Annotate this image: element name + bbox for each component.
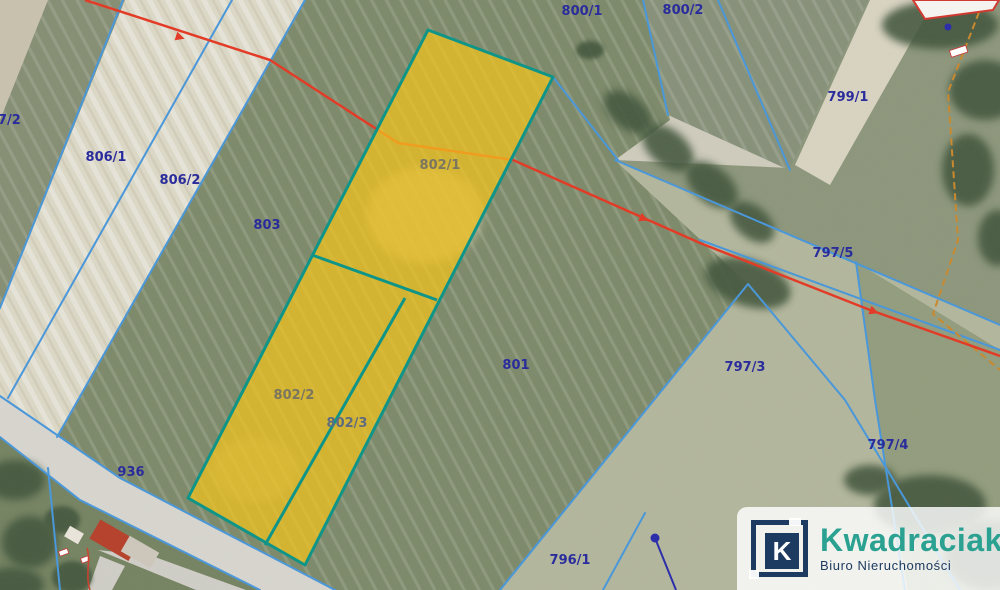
parcel-label-936: 936 [117, 465, 144, 480]
parcel-label-7-2: 7/2 [0, 113, 21, 128]
parcel-label-802-2: 802/2 [274, 388, 315, 403]
survey-point-dot [945, 24, 952, 31]
parcel-label-806-2: 806/2 [160, 173, 201, 188]
parcel-label-802-3: 802/3 [327, 416, 368, 431]
agency-logo: K Kwadraciak Biuro Nieruchomości [737, 507, 1000, 590]
agency-logo-text: Kwadraciak Biuro Nieruchomości [820, 524, 1000, 572]
parcel-label-797-5: 797/5 [813, 246, 854, 261]
parcel-label-799-1: 799/1 [828, 90, 869, 105]
agency-brand-name: Kwadraciak [820, 524, 1000, 558]
parcel-label-800-2: 800/2 [663, 3, 704, 18]
k-mark-letter: K [765, 533, 799, 569]
cadastral-map: 800/1 800/2 799/1 7/2 806/1 806/2 803 80… [0, 0, 1000, 590]
parcel-label-802-1: 802/1 [420, 158, 461, 173]
agency-tagline: Biuro Nieruchomości [820, 559, 1000, 573]
listing-map-screenshot: 800/1 800/2 799/1 7/2 806/1 806/2 803 80… [0, 0, 1000, 590]
parcel-label-796-1: 796/1 [550, 553, 591, 568]
parcel-label-803: 803 [253, 218, 280, 233]
parcel-label-800-1: 800/1 [562, 4, 603, 19]
agency-logo-k-mark: K [751, 520, 808, 577]
parcel-label-806-1: 806/1 [86, 150, 127, 165]
parcel-label-797-4: 797/4 [868, 438, 909, 453]
parcel-label-797-3: 797/3 [725, 360, 766, 375]
parcel-label-801: 801 [502, 358, 529, 373]
